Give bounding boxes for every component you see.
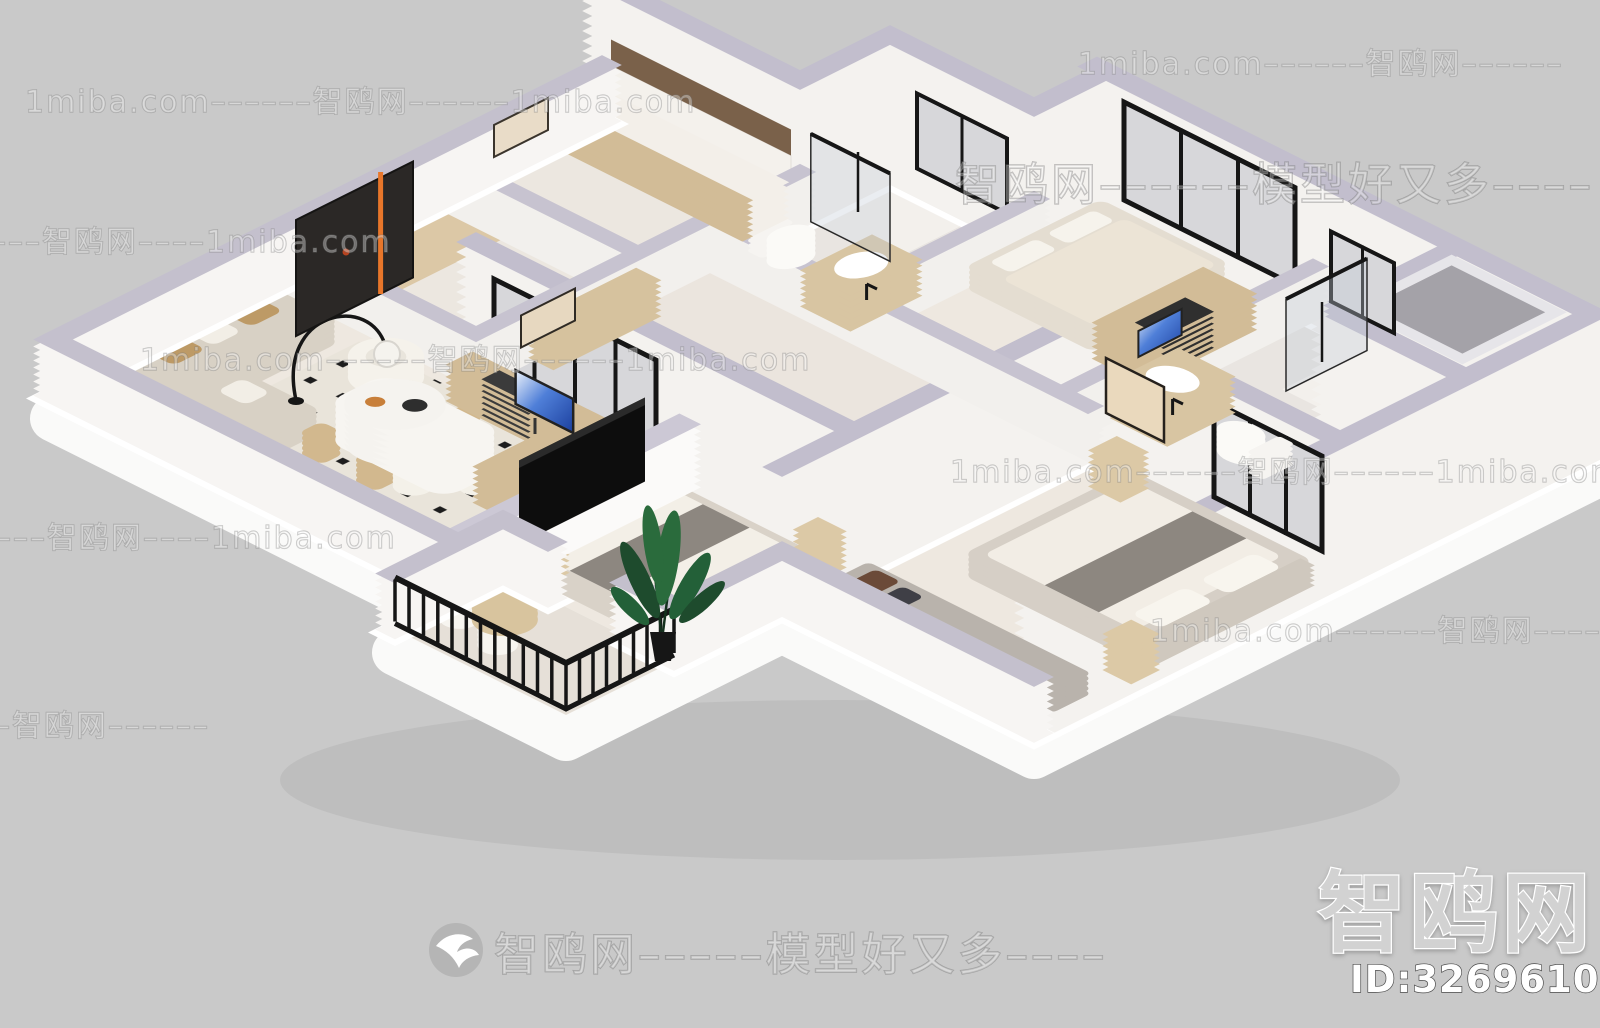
- screenshot-canvas: 1miba.com––––––智鸥网–––––– 1miba.com––––––…: [0, 0, 1600, 1028]
- bottom-center-watermark: 智鸥网–––––模型好又多––––: [429, 923, 1108, 981]
- watermark-row-8: ––––––智鸥网––––––: [0, 709, 210, 744]
- watermark-row-6: ––––––智鸥网––––1miba.com: [0, 521, 397, 556]
- watermark-row-3: ––––––智鸥网––––1miba.com: [0, 225, 392, 260]
- watermark-row-4: 1miba.com––––––智鸥网––––––1miba.com: [140, 343, 811, 378]
- watermark-row-2: 智鸥网––––––模型好又多––––: [955, 158, 1594, 211]
- watermark-row-0: 1miba.com––––––智鸥网––––––: [1078, 47, 1564, 82]
- watermark-row-1: 1miba.com––––––智鸥网––––––1miba.com: [25, 85, 696, 120]
- watermark-row-9: 智鸥网–––––模型好又多––––: [494, 928, 1108, 981]
- model-id-text: ID:326961044: [1350, 958, 1600, 1001]
- bottom-right-watermark: 智鸥网 ID:326961044: [1318, 862, 1600, 1001]
- watermark-row-5: 1miba.com––––––智鸥网––––––1miba.com: [950, 455, 1600, 490]
- apartment-3d-render: 1miba.com––––––智鸥网–––––– 1miba.com––––––…: [0, 0, 1600, 1028]
- ground-shadow: [280, 700, 1400, 860]
- watermark-row-7: 1miba.com––––––智鸥网––––: [1150, 614, 1600, 649]
- brand-watermark-text: 智鸥网: [1318, 862, 1594, 965]
